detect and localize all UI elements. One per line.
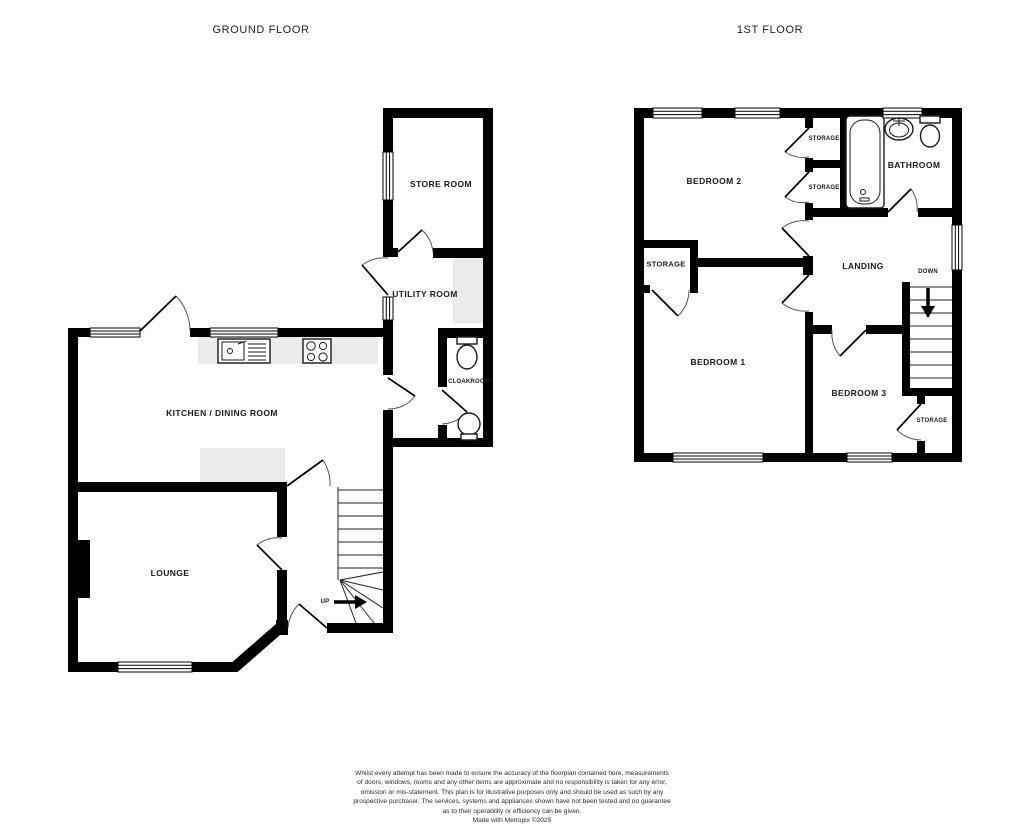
- door-swing-icon: [785, 128, 809, 158]
- door-swing-icon: [398, 230, 433, 252]
- label-up: UP: [321, 599, 330, 605]
- disclaimer-line: as to their operability or efficiency ca…: [353, 807, 670, 816]
- door-swing-icon: [782, 275, 809, 311]
- bay-diagonal-wall: [235, 626, 282, 667]
- window-icon: [118, 662, 192, 672]
- label-storage-landing: STORAGE: [646, 260, 685, 269]
- label-bathroom: BATHROOM: [888, 160, 941, 170]
- bath-icon: [846, 116, 884, 208]
- door-swing-icon: [288, 604, 327, 628]
- toilet-icon: [457, 337, 477, 369]
- window-icon: [883, 108, 922, 118]
- window-icon: [847, 453, 892, 462]
- label-cloakroom: CLOAKROOM: [448, 379, 490, 385]
- label-down: DOWN: [918, 269, 938, 275]
- label-utility-room: UTILITY ROOM: [392, 289, 458, 299]
- disclaimer: Whilst every attempt has been made to en…: [353, 769, 670, 824]
- disclaimer-line: Whilst every attempt has been made to en…: [353, 769, 670, 778]
- window-icon: [653, 108, 702, 118]
- label-lounge: LOUNGE: [151, 568, 190, 578]
- disclaimer-line: of doors, windows, rooms and any other i…: [353, 778, 670, 787]
- window-icon: [90, 328, 140, 337]
- floorplan-drawing: [0, 0, 1024, 824]
- label-storage-bedroom-3: STORAGE: [917, 418, 948, 424]
- label-bedroom-2: BEDROOM 2: [686, 176, 741, 186]
- credit-line: Made with Metropix ©2025: [353, 816, 670, 824]
- door-swing-icon: [652, 290, 689, 316]
- toilet-icon: [920, 116, 940, 147]
- door-swing-icon: [362, 258, 388, 295]
- door-swing-icon: [785, 172, 809, 203]
- ground-floor-title: GROUND FLOOR: [212, 24, 309, 36]
- door-swing-icon: [257, 538, 282, 570]
- window-icon: [210, 328, 278, 337]
- first-floor-title: 1ST FLOOR: [737, 24, 803, 36]
- door-swing-icon: [388, 378, 415, 409]
- door-swing-icon: [140, 296, 190, 331]
- door-swing-icon: [287, 460, 330, 486]
- door-swing-icon: [888, 189, 917, 212]
- window-icon: [383, 152, 393, 200]
- chimney-breast: [74, 540, 90, 598]
- basin-icon: [885, 118, 913, 140]
- door-swing-icon: [782, 221, 809, 256]
- label-store-room: STORE ROOM: [410, 179, 472, 189]
- window-icon: [383, 297, 393, 320]
- disclaimer-line: prospective purchaser. The services, sys…: [353, 797, 670, 806]
- disclaimer-line: omission or mis-statement. This plan is …: [353, 788, 670, 797]
- stairs-up-icon: [334, 487, 383, 623]
- stairs-down-icon: [910, 287, 952, 378]
- label-landing: LANDING: [842, 261, 884, 271]
- floorplan-page: GROUND FLOOR 1ST FLOOR STORE ROOM UTILIT…: [0, 0, 1024, 824]
- label-bedroom-1: BEDROOM 1: [690, 357, 745, 367]
- window-icon: [673, 453, 763, 462]
- label-kitchen-dining-room: KITCHEN / DINING ROOM: [166, 408, 278, 418]
- basin-icon: [458, 413, 480, 440]
- door-swing-icon: [832, 330, 866, 356]
- label-storage-1: STORAGE: [809, 136, 840, 142]
- ground-floor-plan: [68, 108, 493, 672]
- kitchen-sink-icon: [218, 339, 270, 363]
- hob-icon: [303, 339, 331, 363]
- label-storage-2: STORAGE: [809, 185, 840, 191]
- window-icon: [735, 108, 780, 118]
- label-bedroom-3: BEDROOM 3: [831, 388, 886, 398]
- window-icon: [952, 225, 962, 270]
- ground-walls: [68, 108, 493, 672]
